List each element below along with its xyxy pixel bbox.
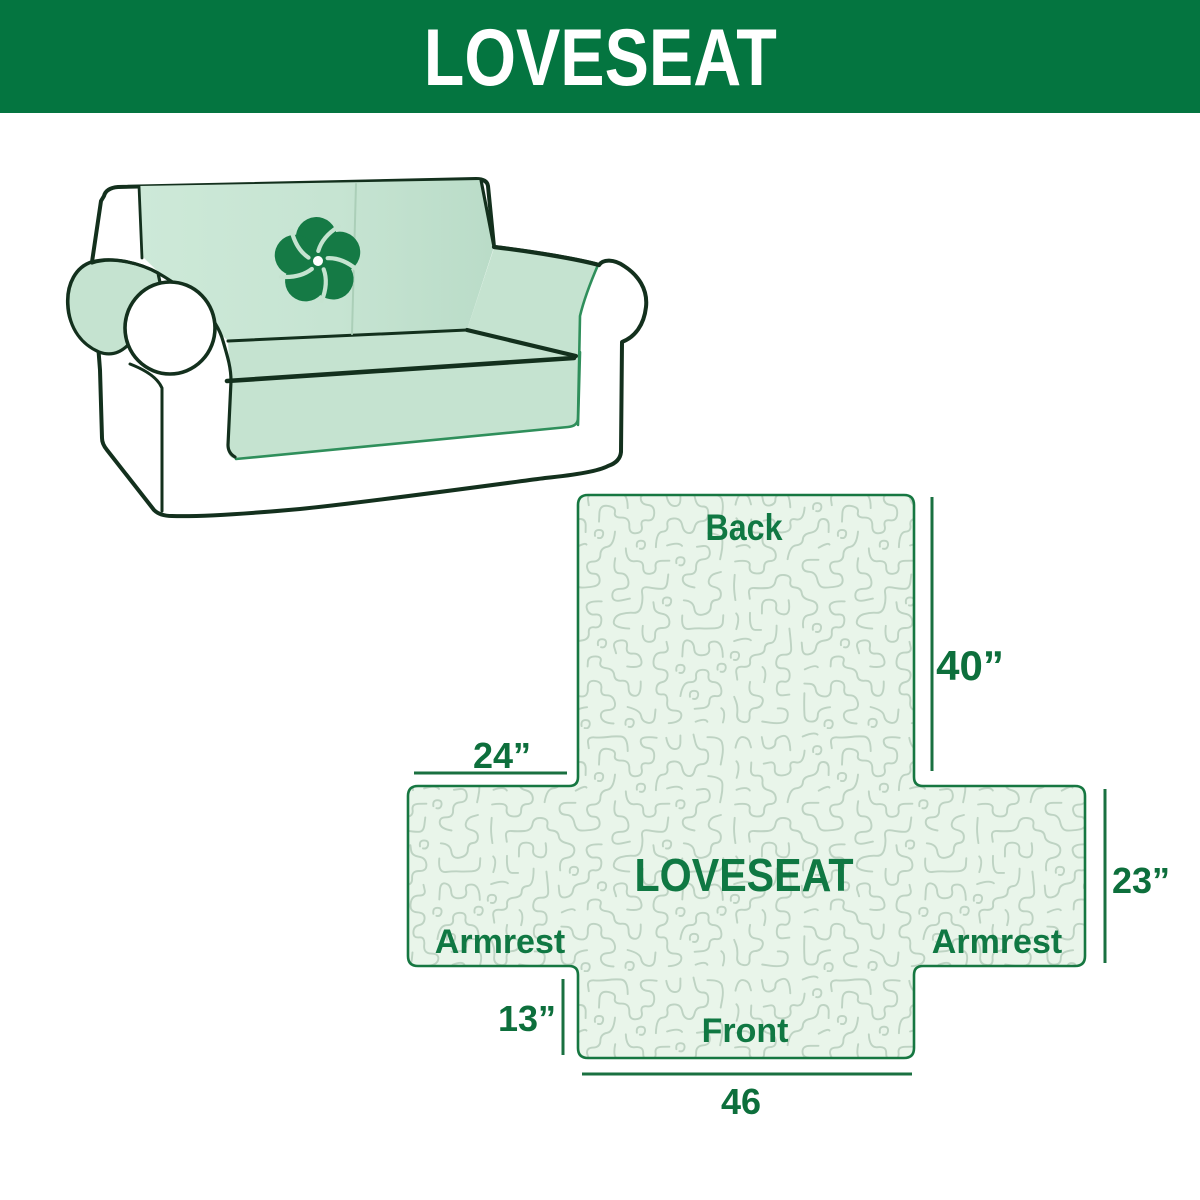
svg-text:24”: 24” — [473, 735, 531, 776]
svg-text:Armrest: Armrest — [435, 923, 565, 961]
svg-text:LOVESEAT: LOVESEAT — [635, 849, 854, 901]
svg-text:Armrest: Armrest — [932, 923, 1062, 961]
svg-text:40”: 40” — [936, 642, 1004, 689]
svg-text:Front: Front — [702, 1012, 789, 1050]
svg-text:13”: 13” — [498, 998, 556, 1039]
svg-text:46: 46 — [721, 1081, 761, 1122]
svg-text:Back: Back — [706, 507, 783, 548]
svg-text:23”: 23” — [1112, 860, 1170, 901]
